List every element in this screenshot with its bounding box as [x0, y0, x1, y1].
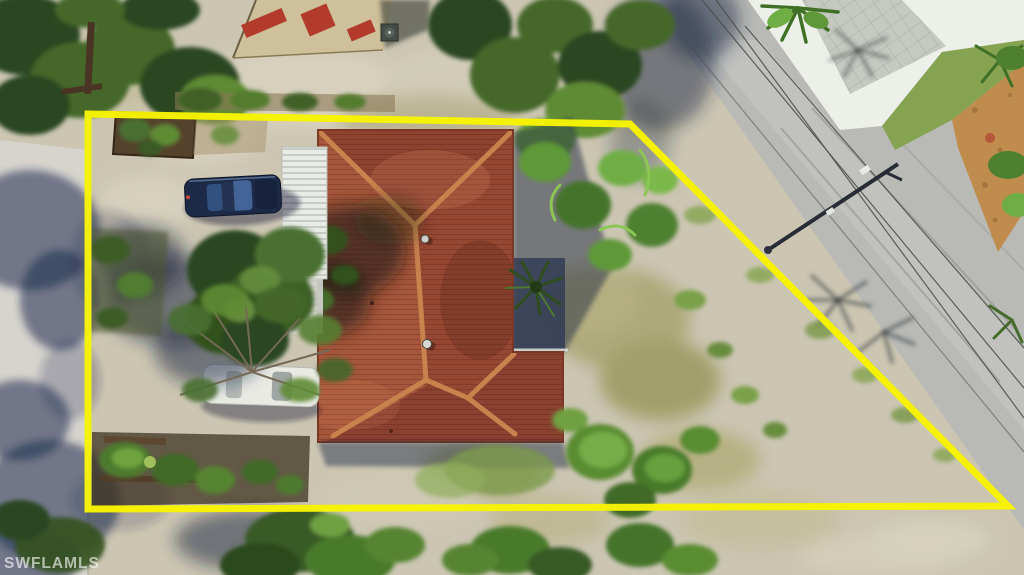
garden-bed-southwest: [92, 432, 310, 506]
watermark: SWFLAMLS: [4, 555, 100, 572]
car-roof: [221, 182, 235, 212]
car-hood: [254, 179, 278, 210]
red-plant: [985, 133, 995, 143]
aerial-photo: SWFLAMLS: [0, 0, 1024, 575]
car-rear-window: [206, 183, 223, 211]
garden-bed-west: [90, 228, 168, 336]
ac-unit: [381, 24, 398, 41]
